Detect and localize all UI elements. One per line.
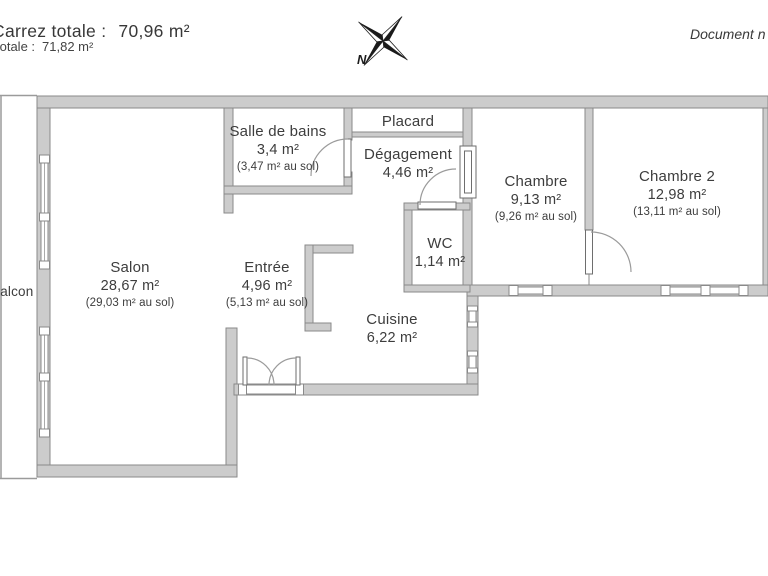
wall-placard-bottom xyxy=(352,132,463,137)
door-arc-chambre2 xyxy=(591,232,631,272)
compass-point xyxy=(383,17,406,44)
wall-right-edge xyxy=(763,108,768,285)
room-label-placard: Placard xyxy=(352,112,464,131)
compass-point xyxy=(359,18,386,41)
room-name: Placard xyxy=(352,112,464,131)
room-name: Chambre xyxy=(466,172,606,191)
room-name: Salle de bains xyxy=(198,122,358,141)
wall-salon-right-lower xyxy=(226,328,237,465)
room-name: Salon xyxy=(50,258,210,277)
room-name: WC xyxy=(402,234,478,253)
wall-top-exterior xyxy=(37,96,768,108)
room-floor-area: (29,03 m² au sol) xyxy=(50,296,210,311)
room-label-salle-de-bains: Salle de bains 3,4 m² (3,47 m² au sol) xyxy=(198,122,358,175)
room-name: Chambre 2 xyxy=(597,167,757,186)
french-door-arc-left xyxy=(247,358,274,385)
room-floor-area: (5,13 m² au sol) xyxy=(187,296,347,311)
french-door-arc-right xyxy=(269,358,296,385)
room-area: 12,98 m² xyxy=(597,186,757,205)
room-name: Entrée xyxy=(187,258,347,277)
french-door-left-leaf xyxy=(243,357,247,385)
compass-north-label: N xyxy=(357,52,366,67)
floorplan-page: Carrez totale :70,96 m² totale :71,82 m²… xyxy=(0,0,768,576)
window-block xyxy=(701,286,710,296)
window-block xyxy=(40,261,50,269)
room-label-wc: WC 1,14 m² xyxy=(402,234,478,272)
room-floor-area: (9,26 m² au sol) xyxy=(466,210,606,225)
compass-light-points xyxy=(339,0,426,85)
window-block xyxy=(40,373,50,381)
room-area: 1,14 m² xyxy=(402,253,478,272)
french-door-right-leaf xyxy=(296,357,300,385)
window-block xyxy=(468,306,478,311)
compass-point xyxy=(380,41,407,64)
room-label-chambre: Chambre 9,13 m² (9,26 m² au sol) xyxy=(466,172,606,225)
room-label-degagement: Dégagement 4,46 m² xyxy=(338,145,478,183)
window-block xyxy=(509,286,518,296)
window-block xyxy=(40,213,50,221)
room-area: 3,4 m² xyxy=(198,141,358,160)
window-block xyxy=(543,286,552,296)
room-label-entree: Entrée 4,96 m² (5,13 m² au sol) xyxy=(187,258,347,311)
window-block xyxy=(468,351,478,356)
room-area: 6,22 m² xyxy=(322,329,462,348)
window-block xyxy=(739,286,748,296)
room-floor-area: (13,11 m² au sol) xyxy=(597,205,757,220)
room-label-cuisine: Cuisine 6,22 m² xyxy=(322,310,462,348)
window-block xyxy=(468,322,478,327)
wall-salon-bottom xyxy=(37,465,237,477)
window-block xyxy=(40,155,50,163)
room-label-balcon: Balcon xyxy=(0,284,61,299)
window-block xyxy=(239,384,247,395)
room-name: Dégagement xyxy=(338,145,478,164)
window-block xyxy=(40,327,50,335)
door-leaf-chambre2 xyxy=(586,230,593,274)
room-label-salon: Salon 28,67 m² (29,03 m² au sol) xyxy=(50,258,210,311)
french-door-threshold xyxy=(241,385,302,394)
door-leaf-wc xyxy=(418,202,456,209)
wall-sdb-bottom xyxy=(224,186,352,194)
window-block xyxy=(40,429,50,437)
room-floor-area: (3,47 m² au sol) xyxy=(198,160,358,175)
room-area: 4,96 m² xyxy=(187,277,347,296)
window-block xyxy=(296,384,304,395)
compass-star-icon xyxy=(339,0,426,85)
room-area: 28,67 m² xyxy=(50,277,210,296)
window-block xyxy=(468,368,478,373)
room-name: Cuisine xyxy=(322,310,462,329)
wall-wc-bottom xyxy=(404,285,470,292)
window-block xyxy=(661,286,670,296)
room-area: 4,46 m² xyxy=(338,164,478,183)
room-label-chambre-2: Chambre 2 12,98 m² (13,11 m² au sol) xyxy=(597,167,757,220)
room-area: 9,13 m² xyxy=(466,191,606,210)
